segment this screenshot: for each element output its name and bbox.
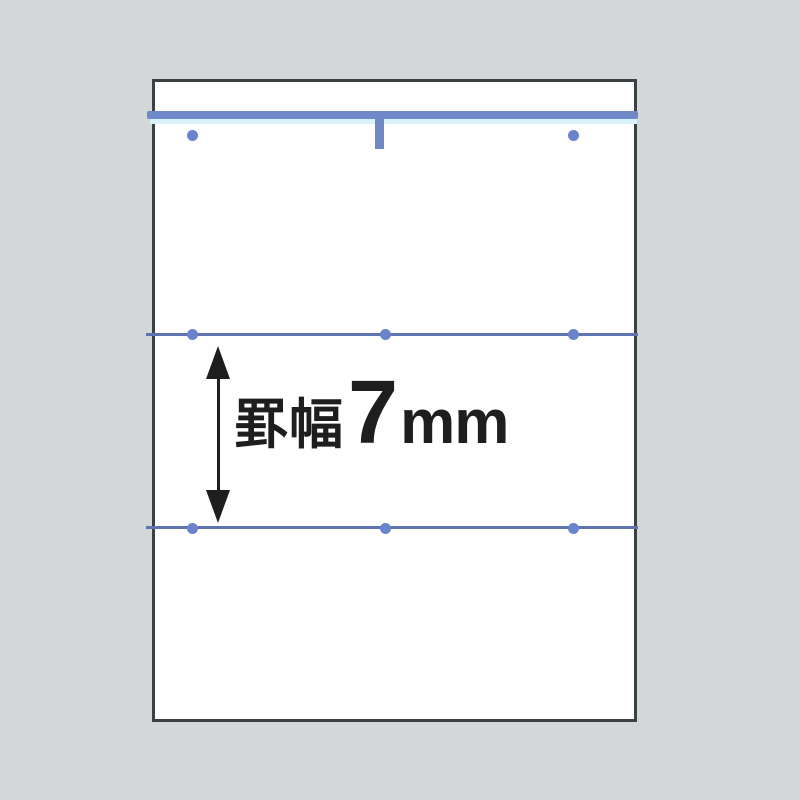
- product-ruling-diagram: 罫幅 7 mm: [0, 0, 800, 800]
- binding-dot: [187, 329, 198, 340]
- measurement-arrow: [217, 370, 220, 498]
- rule-line-lower: [146, 526, 638, 529]
- binding-dot: [187, 130, 198, 141]
- line-width-label-unit: mm: [400, 392, 508, 454]
- binding-dot: [568, 523, 579, 534]
- center-tick-mark: [375, 112, 384, 149]
- arrow-up-icon: [206, 346, 230, 379]
- arrow-down-icon: [206, 490, 230, 523]
- binding-dot: [187, 523, 198, 534]
- binding-dot: [380, 523, 391, 534]
- rule-line-upper: [146, 333, 638, 336]
- line-width-label-prefix: 罫幅: [234, 398, 344, 452]
- binding-dot: [568, 130, 579, 141]
- binding-dot: [380, 329, 391, 340]
- line-width-label: 罫幅 7 mm: [234, 368, 508, 458]
- header-rule-line: [147, 111, 638, 119]
- line-width-label-number: 7: [348, 368, 398, 458]
- binding-dot: [568, 329, 579, 340]
